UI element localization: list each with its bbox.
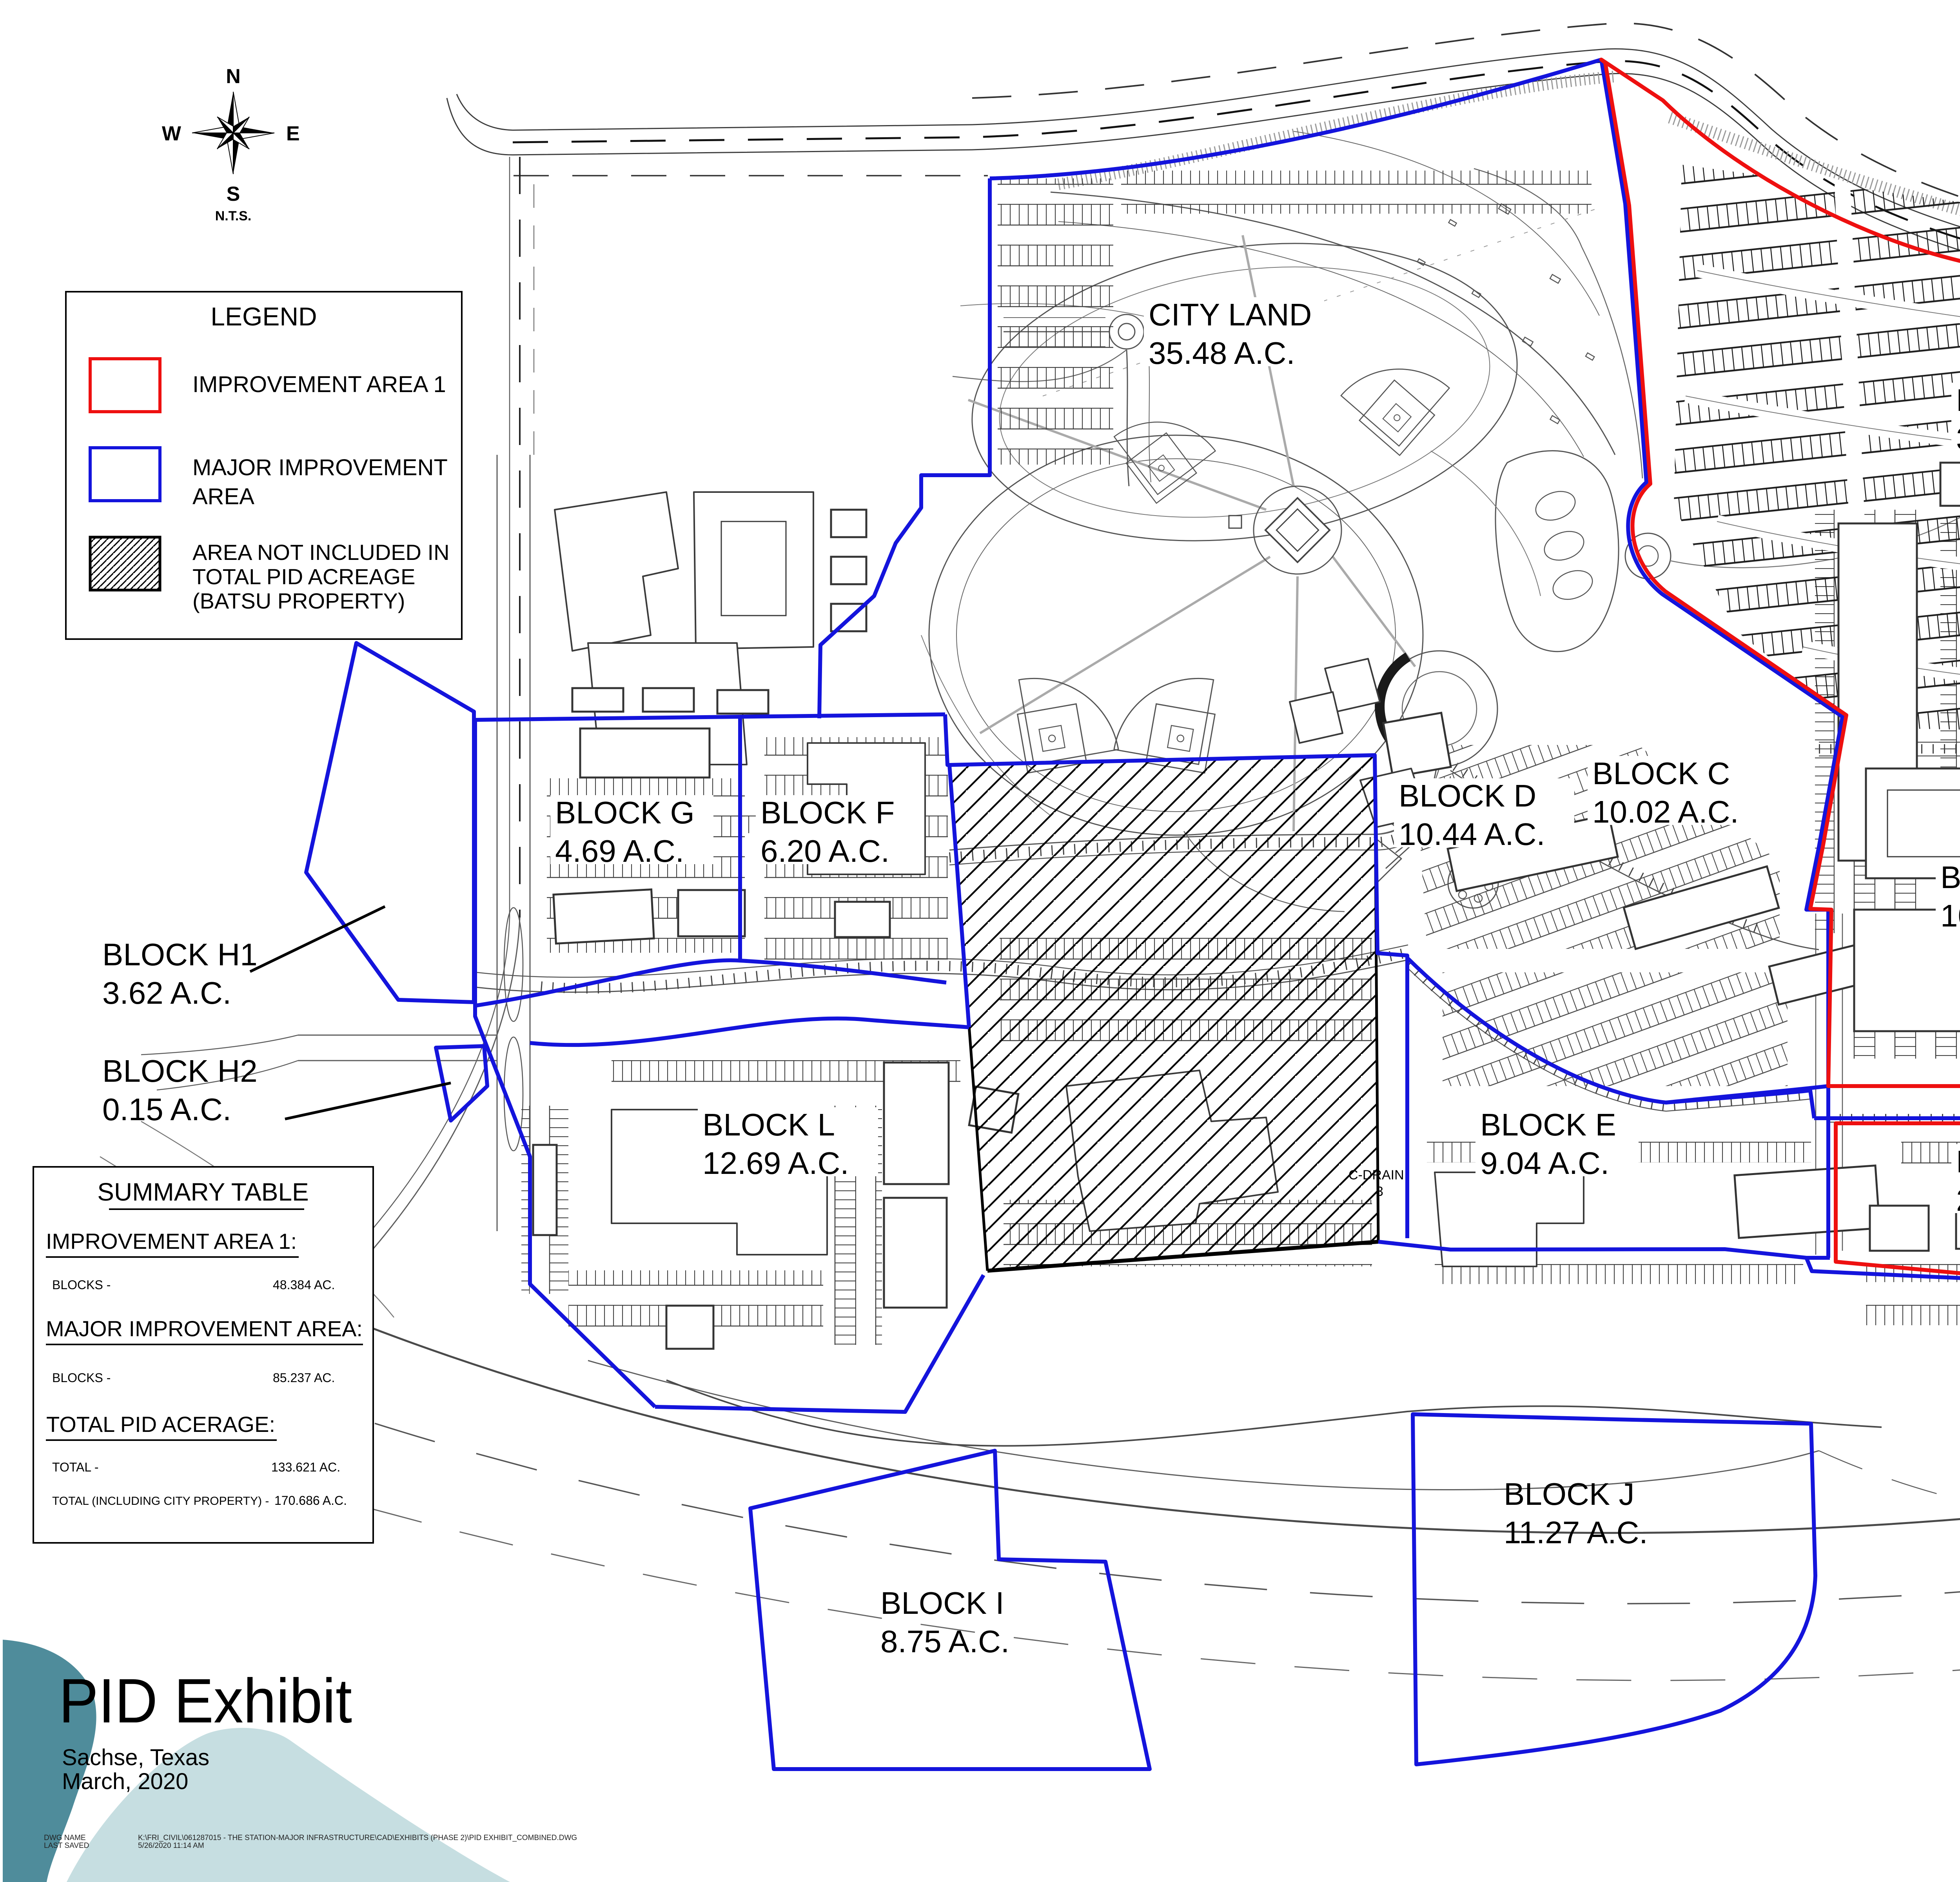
svg-text:PID Exhibit: PID Exhibit [59,1666,352,1736]
svg-text:3.62 A.C.: 3.62 A.C. [102,976,231,1010]
svg-text:BLOCK F: BLOCK F [760,795,895,830]
svg-text:LEGEND: LEGEND [211,302,317,331]
svg-text:2.46 A.C.: 2.46 A.C. [1956,1183,1960,1217]
svg-text:AREA: AREA [192,484,254,509]
svg-text:10.02 A.C.: 10.02 A.C. [1592,794,1739,829]
svg-text:IMPROVEMENT AREA 1:: IMPROVEMENT AREA 1: [46,1229,297,1253]
svg-text:Sachse, Texas: Sachse, Texas [62,1745,209,1770]
svg-text:TOTAL PID ACERAGE:: TOTAL PID ACERAGE: [46,1412,275,1437]
svg-text:8.75 A.C.: 8.75 A.C. [880,1624,1009,1659]
svg-text:BLOCKS -: BLOCKS - [52,1278,111,1292]
svg-text:S: S [227,183,240,205]
svg-text:85.237 AC.: 85.237 AC. [273,1371,335,1385]
svg-text:0.15 A.C.: 0.15 A.C. [102,1092,231,1127]
svg-text:12.69 A.C.: 12.69 A.C. [702,1146,849,1181]
svg-text:5/26/2020 11:14 AM: 5/26/2020 11:14 AM [138,1842,204,1850]
svg-text:TOTAL PID ACREAGE: TOTAL PID ACREAGE [192,564,415,589]
svg-text:(BATSU PROPERTY): (BATSU PROPERTY) [192,589,405,613]
svg-text:BLOCK J: BLOCK J [1504,1477,1634,1511]
svg-text:6.20 A.C.: 6.20 A.C. [760,834,889,868]
svg-text:C-DRAIN: C-DRAIN [1348,1168,1404,1183]
svg-text:3: 3 [1376,1184,1383,1199]
svg-text:35.48 A.C.: 35.48 A.C. [1149,336,1295,371]
svg-text:BLOCKS -: BLOCKS - [52,1371,111,1385]
svg-text:BLOCK L: BLOCK L [702,1107,835,1142]
svg-text:BLOCK E: BLOCK E [1480,1107,1616,1142]
svg-text:BLOCK A: BLOCK A [1956,383,1960,418]
svg-text:E: E [286,122,300,145]
svg-text:10.144 A.C.: 10.144 A.C. [1940,898,1960,933]
svg-text:DWG NAME: DWG NAME [44,1834,86,1842]
svg-text:TOTAL -: TOTAL - [52,1460,99,1474]
svg-text:March, 2020: March, 2020 [62,1769,188,1794]
svg-text:TOTAL (INCLUDING CITY PROPERTY: TOTAL (INCLUDING CITY PROPERTY) - [52,1495,269,1508]
svg-text:CITY LAND: CITY LAND [1149,297,1312,332]
svg-text:170.686 A.C.: 170.686 A.C. [274,1493,347,1508]
svg-text:N: N [226,65,241,88]
svg-text:MAJOR IMPROVEMENT AREA:: MAJOR IMPROVEMENT AREA: [46,1316,363,1341]
svg-text:4.69 A.C.: 4.69 A.C. [555,834,684,868]
svg-text:AREA NOT INCLUDED IN: AREA NOT INCLUDED IN [192,540,450,565]
svg-text:10.44 A.C.: 10.44 A.C. [1399,817,1545,852]
svg-text:35.78 A.C.: 35.78 A.C. [1956,421,1960,456]
svg-text:BLOCK C: BLOCK C [1592,756,1730,791]
svg-text:BLOCK B: BLOCK B [1940,860,1960,895]
svg-text:LAST SAVED: LAST SAVED [44,1842,89,1850]
svg-text:W: W [162,122,181,145]
svg-text:11.27 A.C.: 11.27 A.C. [1504,1515,1648,1550]
svg-text:133.621 AC.: 133.621 AC. [271,1460,340,1474]
svg-text:SUMMARY TABLE: SUMMARY TABLE [97,1178,309,1206]
svg-text:N.T.S.: N.T.S. [215,209,252,223]
svg-text:BLOCK G: BLOCK G [555,795,695,830]
svg-text:BLOCK K1: BLOCK K1 [1956,1144,1960,1179]
svg-text:IMPROVEMENT AREA 1: IMPROVEMENT AREA 1 [192,372,446,397]
svg-text:BLOCK I: BLOCK I [880,1586,1004,1620]
svg-text:MAJOR IMPROVEMENT: MAJOR IMPROVEMENT [192,455,448,480]
svg-text:BLOCK D: BLOCK D [1399,778,1536,813]
svg-text:BLOCK H2: BLOCK H2 [102,1054,258,1088]
svg-text:K:\FRI_CIVIL\061287015 - THE S: K:\FRI_CIVIL\061287015 - THE STATION-MAJ… [138,1834,577,1842]
svg-text:BLOCK H1: BLOCK H1 [102,937,258,972]
svg-text:48.384 AC.: 48.384 AC. [273,1278,335,1292]
svg-text:9.04 A.C.: 9.04 A.C. [1480,1146,1609,1181]
